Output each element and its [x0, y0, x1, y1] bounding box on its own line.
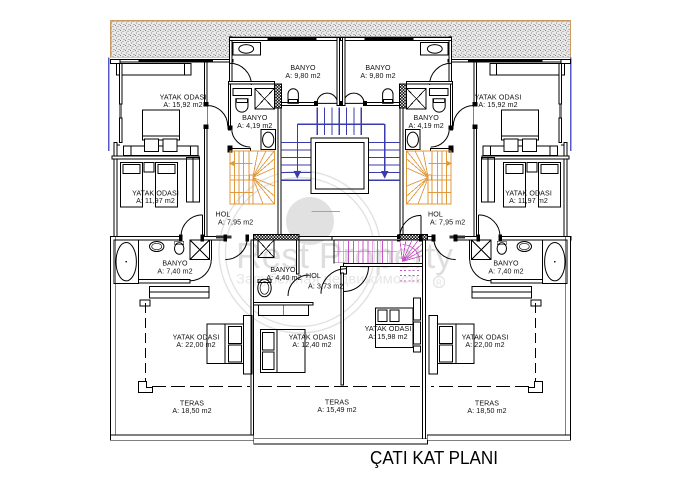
svg-text:A: 11,97 m2: A: 11,97 m2 — [136, 197, 175, 205]
svg-text:BANYO: BANYO — [242, 114, 268, 122]
svg-text:YATAK ODASI: YATAK ODASI — [173, 333, 220, 341]
svg-text:A: 15,98 m2: A: 15,98 m2 — [368, 333, 407, 341]
svg-text:A: 4,40 m2: A: 4,40 m2 — [266, 274, 301, 282]
svg-text:A: 4,19 m2: A: 4,19 m2 — [237, 122, 272, 130]
svg-text:TERAS: TERAS — [325, 398, 349, 406]
svg-text:YATAK ODASI: YATAK ODASI — [132, 189, 179, 197]
svg-text:A: 15,92 m2: A: 15,92 m2 — [478, 101, 517, 109]
svg-text:TERAS: TERAS — [180, 399, 204, 407]
svg-text:BANYO: BANYO — [493, 260, 519, 268]
svg-text:HOL: HOL — [428, 211, 443, 219]
svg-text:ÇATI KAT PLANI: ÇATI KAT PLANI — [370, 448, 498, 468]
svg-text:BANYO: BANYO — [365, 64, 391, 72]
svg-text:A: 7,95 m2: A: 7,95 m2 — [430, 218, 465, 226]
svg-text:TERAS: TERAS — [475, 399, 499, 407]
svg-text:YATAK ODASI: YATAK ODASI — [160, 93, 207, 101]
svg-text:BANYO: BANYO — [414, 114, 440, 122]
svg-text:A: 3,73 m2: A: 3,73 m2 — [308, 282, 343, 290]
svg-text:A: 12,40 m2: A: 12,40 m2 — [292, 341, 331, 349]
svg-text:A: 7,95 m2: A: 7,95 m2 — [218, 218, 253, 226]
svg-text:A: 15,92 m2: A: 15,92 m2 — [163, 101, 202, 109]
svg-text:HOL: HOL — [306, 272, 321, 280]
svg-text:A: 7,40 m2: A: 7,40 m2 — [488, 267, 523, 275]
svg-text:YATAK ODASI: YATAK ODASI — [365, 325, 412, 333]
svg-text:R: R — [436, 279, 442, 288]
svg-text:A: 18,50 m2: A: 18,50 m2 — [467, 407, 506, 415]
svg-text:BANYO: BANYO — [162, 260, 188, 268]
svg-text:BANYO: BANYO — [270, 266, 296, 274]
svg-text:YATAK ODASI: YATAK ODASI — [475, 93, 522, 101]
svg-text:A: 7,40 m2: A: 7,40 m2 — [157, 267, 192, 275]
svg-text:A: 22,00 m2: A: 22,00 m2 — [176, 341, 215, 349]
svg-text:YATAK ODASI: YATAK ODASI — [289, 333, 336, 341]
svg-text:A: 11,97 m2: A: 11,97 m2 — [509, 197, 548, 205]
svg-text:A: 9,80 m2: A: 9,80 m2 — [360, 72, 395, 80]
svg-text:A: 9,80 m2: A: 9,80 m2 — [285, 72, 320, 80]
svg-text:YATAK ODASI: YATAK ODASI — [505, 189, 552, 197]
svg-text:A: 18,50 m2: A: 18,50 m2 — [172, 407, 211, 415]
svg-text:A: 4,19 m2: A: 4,19 m2 — [409, 122, 444, 130]
svg-text:BANYO: BANYO — [290, 64, 316, 72]
svg-text:A: 15,49 m2: A: 15,49 m2 — [317, 406, 356, 414]
svg-text:A: 22,00 m2: A: 22,00 m2 — [465, 341, 504, 349]
svg-text:HOL: HOL — [216, 211, 231, 219]
svg-text:YATAK ODASI: YATAK ODASI — [462, 333, 509, 341]
